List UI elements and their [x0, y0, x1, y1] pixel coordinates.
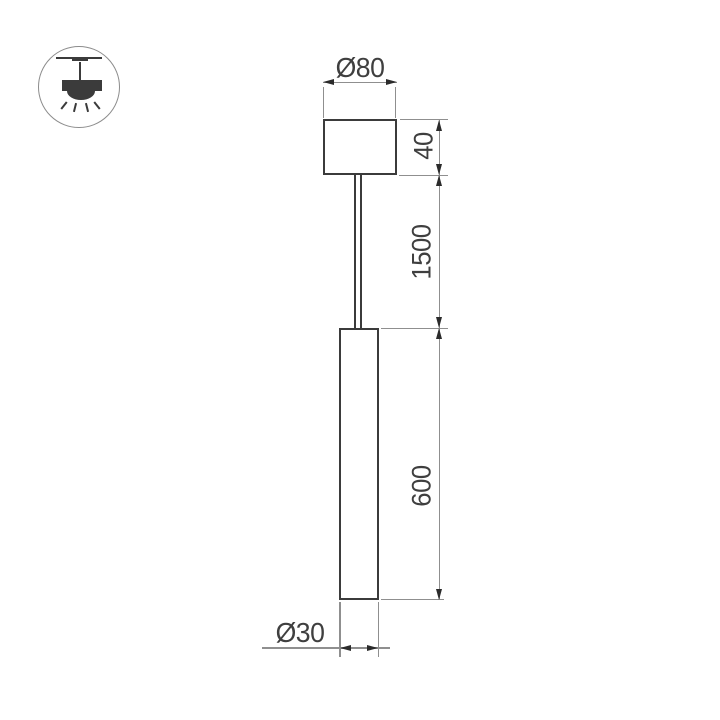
arrowhead-down — [436, 317, 442, 328]
arrowhead-right — [386, 79, 397, 85]
extension-line — [395, 87, 396, 118]
arrowhead-left — [340, 645, 351, 651]
dim-label-body-diameter: Ø30 — [276, 619, 325, 647]
arrowhead-down — [436, 589, 442, 600]
arrowhead-up — [436, 120, 442, 131]
icon-light-ray — [73, 103, 77, 112]
suspension-cable — [354, 175, 362, 328]
extension-line — [381, 599, 444, 600]
dim-label-canopy-height: 40 — [411, 132, 438, 160]
icon-light-ray — [85, 103, 89, 112]
icon-lamp-body — [62, 80, 102, 92]
arrowhead-up — [436, 328, 442, 339]
dim-label-body-length: 600 — [409, 465, 436, 506]
icon-light-ray — [60, 101, 67, 109]
arrowhead-right — [367, 645, 378, 651]
pendant-light-icon — [38, 46, 120, 128]
icon-stem — [79, 62, 81, 80]
dim-label-suspension-length: 1500 — [409, 224, 436, 279]
lamp-canopy — [323, 119, 397, 175]
extension-line — [323, 87, 324, 118]
arrowhead-down — [436, 164, 442, 175]
dimension-line — [439, 119, 440, 600]
icon-lamp-dome — [67, 91, 95, 100]
dim-label-canopy-diameter: Ø80 — [336, 54, 385, 82]
lamp-tube-body — [339, 328, 379, 600]
arrowhead-up — [436, 175, 442, 186]
icon-light-ray — [93, 101, 100, 109]
drawing-canvas: Ø80 40 1500 600 Ø30 — [0, 0, 720, 720]
arrowhead-left — [323, 79, 334, 85]
